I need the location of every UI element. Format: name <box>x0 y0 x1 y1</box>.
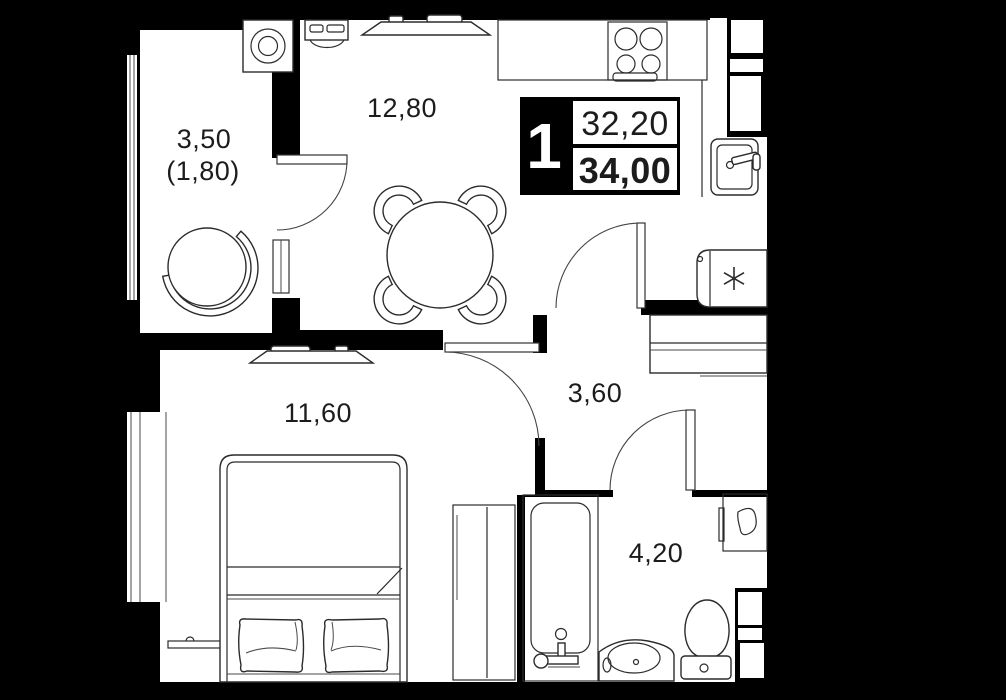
tv-icon <box>362 15 490 35</box>
badge-room-count: 1 <box>526 110 562 182</box>
vent-opening <box>738 592 762 625</box>
tv-icon <box>250 346 373 363</box>
label-loggia-area-reduced: (1,80) <box>166 156 240 186</box>
vent-opening <box>740 643 764 678</box>
loggia-window-band <box>127 55 137 300</box>
balcony-door-leaf <box>277 155 347 164</box>
label-bathroom-area: 4,20 <box>629 538 684 568</box>
hallway-furniture <box>650 315 767 376</box>
badge-total-area: 34,00 <box>579 150 672 191</box>
label-hallway-area: 3,60 <box>568 378 623 408</box>
armchair-icon <box>168 228 246 306</box>
dining-table-icon <box>387 202 493 308</box>
vanity-sink-icon <box>599 640 674 681</box>
floor-plan: 3,50 (1,80) 12,80 11,60 3,60 4,20 1 32,2… <box>0 0 1006 700</box>
hall-cabinet <box>650 315 767 373</box>
bathroom-door-opening <box>613 487 692 499</box>
vent-opening <box>730 76 761 131</box>
vent-opening <box>738 628 762 640</box>
badge-living-area: 32,20 <box>581 105 669 143</box>
bedroom-window-band <box>127 412 169 602</box>
refrigerator-icon <box>697 250 767 307</box>
vent-opening <box>730 59 763 72</box>
vent-opening <box>731 20 763 53</box>
label-loggia-area: 3,50 <box>177 124 232 154</box>
kitchen-sink-icon <box>711 139 760 195</box>
label-bedroom-area: 11,60 <box>284 398 352 428</box>
pillow-icon <box>324 619 389 673</box>
loggia-furniture <box>163 228 258 316</box>
bedroom-door-leaf <box>445 343 539 352</box>
info-badge: 1 32,20 34,00 <box>520 97 680 195</box>
kitchen-door-leaf <box>637 223 645 308</box>
floor-plan-canvas: 3,50 (1,80) 12,80 11,60 3,60 4,20 1 32,2… <box>0 0 1006 700</box>
label-kitchen-living-area: 12,80 <box>367 93 437 123</box>
bed-icon <box>220 455 407 682</box>
pillow-icon <box>239 619 304 672</box>
bathroom-door-leaf <box>686 410 695 490</box>
